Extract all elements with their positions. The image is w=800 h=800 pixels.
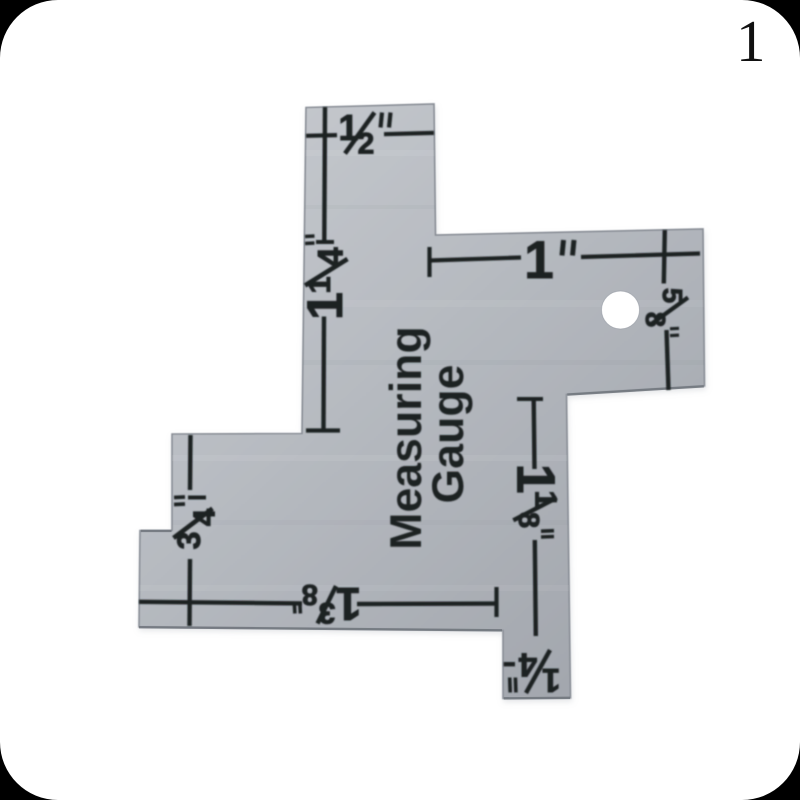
svg-text:1: 1 bbox=[505, 464, 565, 494]
svg-text:8: 8 bbox=[302, 578, 318, 610]
svg-text:Gauge: Gauge bbox=[424, 365, 473, 504]
svg-text:1: 1 bbox=[336, 578, 362, 630]
svg-text:1: 1 bbox=[297, 292, 353, 320]
svg-text:1: 1 bbox=[736, 8, 766, 74]
svg-text:4: 4 bbox=[311, 247, 350, 267]
svg-text:1: 1 bbox=[542, 662, 560, 699]
svg-text:1: 1 bbox=[524, 231, 553, 290]
